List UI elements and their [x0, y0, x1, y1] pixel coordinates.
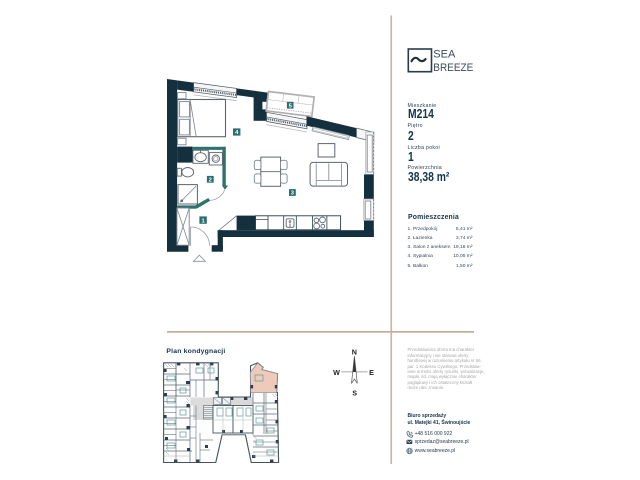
svg-text:W: W — [333, 368, 340, 377]
svg-text:BREEZE: BREEZE — [433, 62, 473, 74]
svg-text:2: 2 — [209, 177, 212, 183]
svg-text:SEA: SEA — [433, 49, 456, 61]
svg-text:N: N — [352, 348, 357, 357]
svg-text:E: E — [369, 368, 374, 377]
svg-text:S: S — [352, 388, 357, 397]
